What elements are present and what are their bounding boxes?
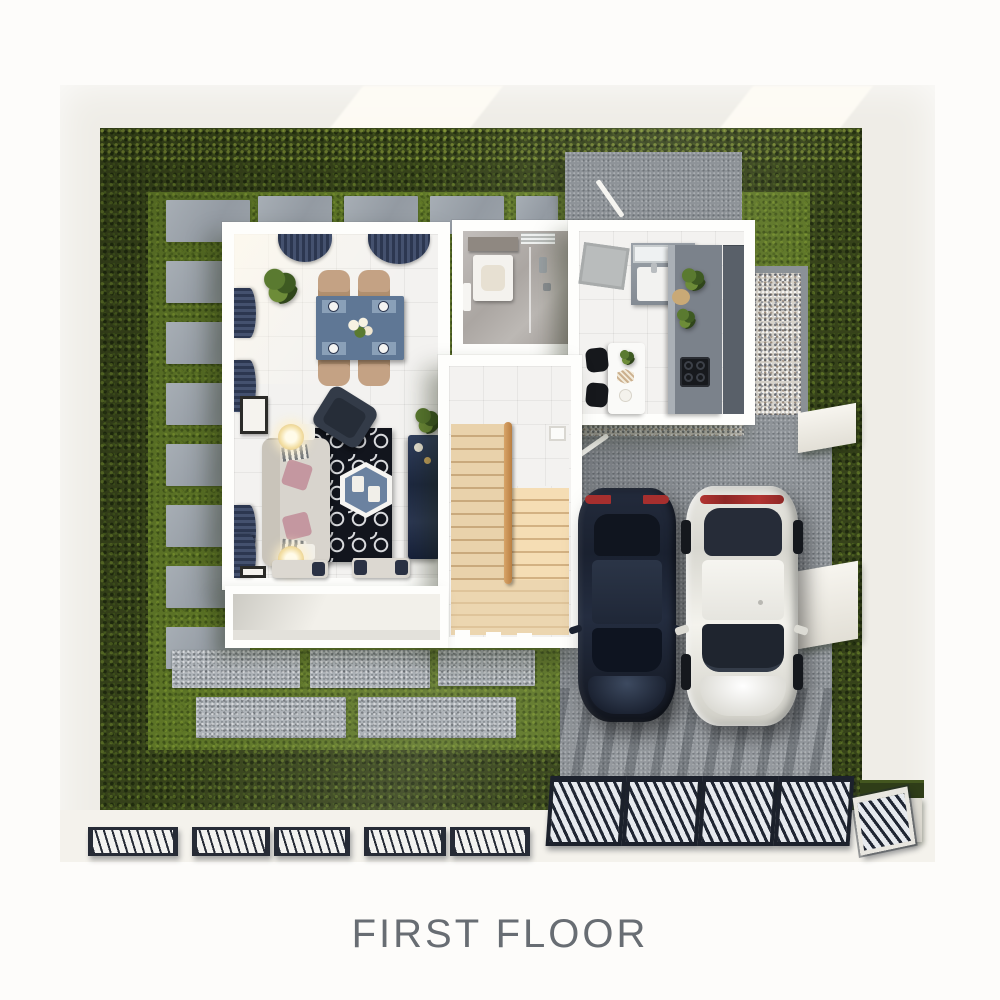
- first-floor-plan-rendering: FIRST FLOOR: [0, 0, 1000, 1000]
- wall-art-frame: [240, 396, 268, 434]
- tray: [352, 476, 364, 492]
- hood-shine: [588, 676, 666, 714]
- bar-stool: [585, 347, 609, 373]
- bench-pillow: [312, 562, 325, 576]
- wall-tooth: [486, 632, 501, 647]
- plate: [328, 343, 339, 354]
- stair-hall: [438, 355, 582, 648]
- car-roof: [592, 560, 662, 624]
- stair-flight-right: [511, 488, 569, 580]
- armchair-seat: [321, 396, 367, 441]
- burner: [684, 361, 693, 370]
- faucet: [651, 263, 657, 273]
- living-dining-room: [222, 222, 450, 590]
- porch-shadow: [233, 594, 353, 630]
- sofa-back-cushions: [262, 438, 280, 566]
- bench: [352, 558, 410, 578]
- kitchen-island: [608, 343, 645, 414]
- stair-handrail: [504, 422, 512, 584]
- understair-floor: [511, 424, 569, 486]
- driveway-gate-panel: [698, 776, 779, 846]
- rear-window: [594, 514, 660, 556]
- floor-lamp: [278, 424, 304, 450]
- wall-tooth: [517, 633, 532, 648]
- taillight: [585, 495, 611, 504]
- bench: [272, 560, 328, 578]
- dining-chair: [318, 356, 350, 386]
- driveway-pier: [798, 561, 858, 650]
- front-fence-panel: [450, 827, 530, 856]
- wheel: [681, 654, 691, 690]
- doormat: [578, 242, 629, 290]
- hood: [700, 676, 786, 716]
- curtain: [234, 288, 256, 338]
- console-decor: [424, 457, 431, 464]
- page-title: FIRST FLOOR: [0, 912, 1000, 957]
- wheel: [681, 520, 691, 554]
- stair-flight-left: [451, 424, 509, 580]
- wall-tooth: [455, 630, 470, 645]
- island-plant: [619, 349, 635, 365]
- tray: [368, 486, 380, 502]
- bench-pillow: [354, 560, 367, 575]
- dining-table: [316, 296, 404, 360]
- paver-slab: [438, 650, 535, 686]
- car-roof: [702, 560, 784, 620]
- basket: [672, 289, 690, 305]
- kitchen-window: [633, 245, 673, 263]
- shower-glass: [529, 247, 531, 333]
- pedestrian-gate: [853, 786, 916, 855]
- sink-basin: [481, 265, 505, 291]
- vanity-counter: [473, 255, 513, 301]
- console-plant: [414, 406, 440, 434]
- bathroom: [452, 220, 582, 355]
- console-decor: [414, 443, 423, 452]
- bathroom-window: [521, 233, 555, 244]
- paver-slab: [196, 697, 346, 738]
- wheel: [793, 654, 803, 690]
- antenna: [758, 600, 763, 605]
- counter-plant: [680, 267, 706, 291]
- windshield: [592, 628, 662, 672]
- shower-drain: [543, 283, 551, 291]
- front-fence-panel: [364, 827, 446, 856]
- burner: [696, 373, 705, 382]
- bench-pillow: [395, 560, 408, 575]
- burner: [684, 373, 693, 382]
- paver-slab: [310, 650, 430, 688]
- dining-chair: [358, 356, 390, 386]
- towel: [463, 283, 471, 311]
- windshield: [702, 624, 784, 672]
- front-porch: [225, 586, 448, 648]
- taillight-strip: [700, 495, 784, 504]
- dark-sedan: [578, 488, 676, 722]
- kitchen-counter-right: [668, 245, 722, 414]
- taillight: [643, 495, 669, 504]
- porch-step: [233, 630, 440, 640]
- driveway-gate-panel: [622, 776, 703, 846]
- counter-plant: [676, 307, 696, 329]
- tall-cabinets: [723, 245, 744, 414]
- trivet: [617, 369, 634, 384]
- vanity-shelf: [468, 237, 518, 251]
- table-centerpiece: [344, 314, 376, 342]
- understair-window: [549, 426, 566, 441]
- front-fence-panel: [192, 827, 270, 856]
- kitchen-sink: [637, 267, 671, 301]
- stair-landing: [451, 580, 569, 635]
- driveway-gate-panel: [546, 776, 627, 846]
- wall-art-frame: [240, 566, 266, 578]
- wheel: [793, 520, 803, 554]
- pink-pillow: [281, 511, 312, 541]
- bowl: [619, 389, 632, 402]
- paver-slab: [172, 650, 300, 688]
- front-fence-panel: [88, 827, 178, 856]
- burner: [696, 361, 705, 370]
- shower-control: [539, 257, 547, 273]
- pink-pillow: [281, 459, 314, 492]
- white-sedan: [686, 486, 798, 726]
- plate: [328, 301, 339, 312]
- rear-window: [704, 508, 782, 556]
- kitchen: [568, 220, 755, 425]
- bar-stool: [585, 382, 609, 408]
- front-fence-panel: [274, 827, 350, 856]
- tv-console: [408, 435, 440, 559]
- driveway-gate-panel: [774, 776, 855, 846]
- paver-slab: [358, 697, 516, 738]
- plate: [378, 301, 389, 312]
- plate: [378, 343, 389, 354]
- corner-plant: [262, 266, 298, 304]
- cooktop: [680, 357, 710, 387]
